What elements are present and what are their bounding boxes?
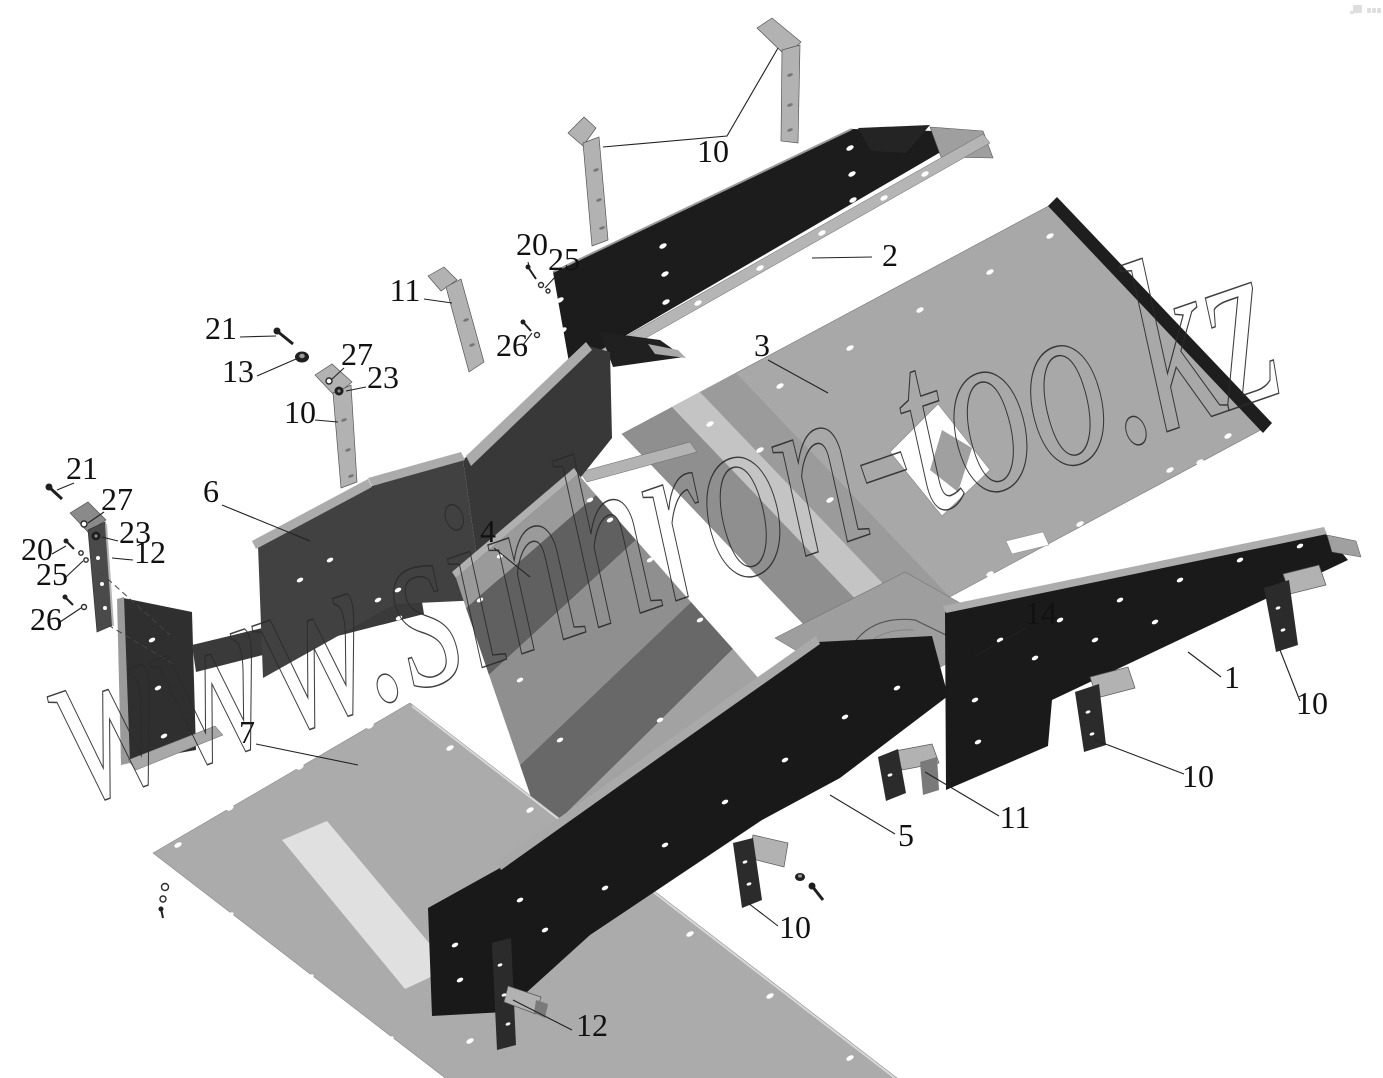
washer-27-left	[81, 521, 87, 527]
corner-watermark-icon-part	[1367, 8, 1371, 13]
bracket12-a-slots-hole	[96, 556, 100, 560]
callout-label-11: 11	[1000, 799, 1031, 835]
bracket11-b-side	[920, 757, 939, 795]
callout-label-10: 10	[1182, 758, 1214, 794]
exploded-parts-diagram: 1022025112621132723106212723201225263414…	[0, 0, 1383, 1078]
callout-label-25: 25	[548, 241, 580, 277]
bolt-26-upper-head	[521, 320, 526, 325]
bolt-21-upper-head	[274, 328, 281, 335]
callout-label-21: 21	[66, 450, 98, 486]
callout-label-1: 1	[1224, 659, 1240, 695]
corner-watermark-icon-part	[1353, 5, 1362, 13]
callout-label-11: 11	[390, 272, 421, 308]
callout-label-12: 12	[576, 1007, 608, 1043]
washer-25-upper-2	[546, 289, 550, 293]
nut-23-upper	[335, 387, 344, 396]
bushing-bottom	[795, 873, 805, 881]
bolt-bottom-left-head	[159, 907, 164, 912]
callout-label-26: 26	[496, 327, 528, 363]
washer-25-upper-1	[539, 283, 544, 288]
washer-bottom-1	[162, 884, 169, 891]
washer-bottom-2	[160, 896, 166, 902]
callout-label-10: 10	[779, 909, 811, 945]
callout-label-10: 10	[284, 394, 316, 430]
callout-label-5: 5	[898, 817, 914, 853]
callout-label-20: 20	[516, 226, 548, 262]
washer-20-left	[79, 551, 83, 555]
nut-23-upper-center	[337, 389, 340, 392]
corner-watermark-icon-part	[1350, 11, 1354, 14]
callout-label-21: 21	[205, 310, 237, 346]
washer-25-left	[84, 558, 88, 562]
washer-27-upper	[326, 378, 332, 384]
callout-26-5: 26	[496, 327, 532, 363]
bushing-13	[295, 352, 309, 363]
bolt-20-left-head	[64, 539, 69, 544]
callout-label-10: 10	[697, 133, 729, 169]
callout-label-2: 2	[882, 237, 898, 273]
nut-23-left	[92, 532, 101, 541]
nut-23-left-center	[94, 534, 97, 537]
corner-watermark-icon-part	[1377, 8, 1381, 13]
callout-label-23: 23	[367, 359, 399, 395]
bolt-21-left-head	[46, 484, 53, 491]
callout-label-13: 13	[222, 353, 254, 389]
washer-26-upper	[535, 333, 540, 338]
diagram-page: 1022025112621132723106212723201225263414…	[0, 0, 1383, 1078]
callout-label-6: 6	[203, 473, 219, 509]
bushing-13-bore	[299, 354, 305, 358]
bracket10-b-strap	[781, 45, 800, 143]
callout-label-10: 10	[1296, 685, 1328, 721]
bushing-bottom-bore	[798, 874, 802, 877]
callout-label-14: 14	[1025, 595, 1057, 631]
corner-watermark-icon-part	[1372, 8, 1376, 13]
bolt-bottom-center-head	[809, 883, 816, 890]
callout-label-27: 27	[101, 481, 133, 517]
